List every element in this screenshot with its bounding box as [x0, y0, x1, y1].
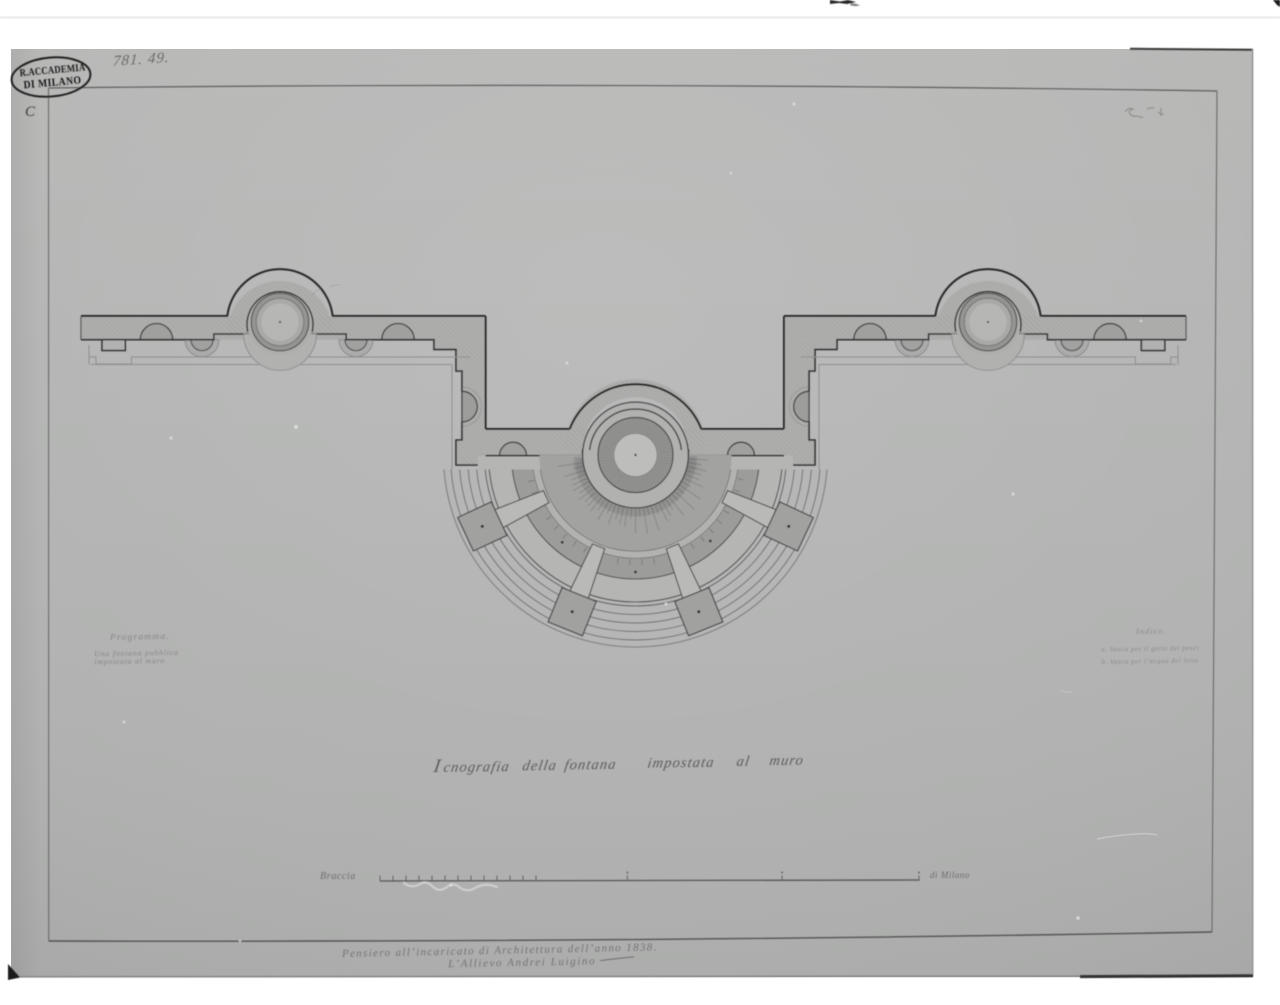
svg-text:C: C: [25, 104, 36, 120]
svg-text:impostata: impostata: [646, 755, 716, 772]
svg-text:Programma.: Programma.: [109, 632, 170, 643]
svg-text:di Milano: di Milano: [930, 870, 970, 880]
svg-text:della: della: [521, 758, 558, 774]
svg-text:impostata al muro: impostata al muro: [94, 656, 165, 666]
svg-text:Indice.: Indice.: [1135, 625, 1167, 636]
svg-text:cnografia: cnografia: [442, 759, 511, 776]
svg-text:al: al: [735, 754, 751, 770]
svg-text:fontana: fontana: [563, 757, 618, 774]
svg-text:muro: muro: [768, 753, 805, 769]
svg-text:b. Vasca per l’acqua del letto: b. Vasca per l’acqua del letto: [1101, 656, 1198, 666]
svg-text:Braccia: Braccia: [320, 871, 356, 882]
svg-text:a. Vasca per il getto dei pesc: a. Vasca per il getto dei pesci: [1101, 644, 1199, 654]
